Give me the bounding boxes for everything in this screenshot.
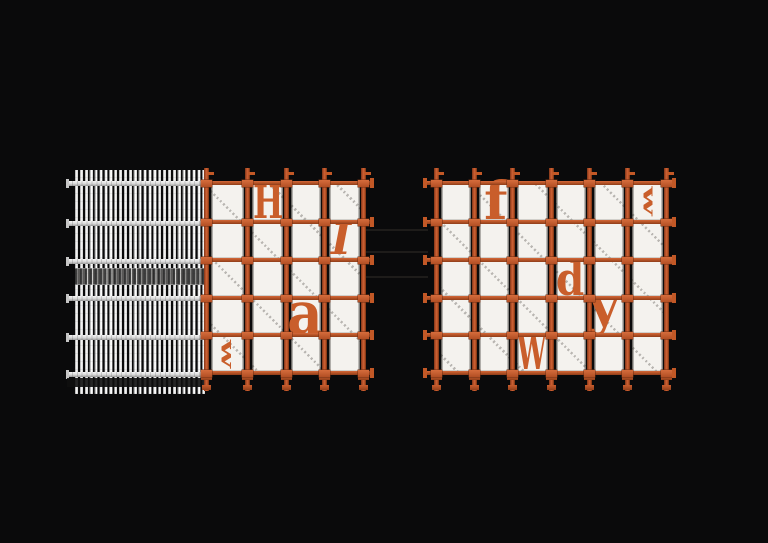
left-scaffold-joint-pad [358, 370, 369, 377]
left-scaffold-panel [211, 261, 244, 296]
right-scaffold-joint-pad [546, 257, 557, 264]
left-scaffold-panel [329, 299, 360, 333]
right-scaffold-joint-pad [661, 180, 672, 187]
right-scaffold-rail-end-tab [672, 293, 676, 303]
left-scaffold-panel [252, 336, 283, 371]
right-scaffold-rail-end-tab [672, 368, 676, 378]
right-scaffold-joint-pad [469, 332, 480, 339]
grate-rail [67, 259, 207, 264]
right-scaffold-panel [594, 184, 624, 220]
left-scaffold-rail-end-tab [370, 178, 374, 188]
left-scaffold-post [204, 168, 209, 391]
right-scaffold-post-foot [470, 385, 479, 390]
left-scaffold-joint-pad [358, 295, 369, 302]
right-scaffold-joint-pad [546, 219, 557, 226]
left-scaffold-post [245, 168, 250, 391]
left-scaffold-joint-pad [242, 370, 253, 377]
scaffold-letter-w: w [641, 186, 658, 215]
right-scaffold-joint-pad [469, 180, 480, 187]
left-scaffold-panel [211, 223, 244, 258]
right-scaffold-panel [594, 336, 624, 371]
scaffold-letter-H: H [253, 179, 283, 225]
left-scaffold-joint-pad [201, 295, 212, 302]
right-scaffold-rail-end-tab [672, 217, 676, 227]
background-ledger-line [366, 229, 428, 231]
right-scaffold-post-foot-tab [622, 376, 633, 380]
right-scaffold-panel [441, 223, 471, 258]
left-scaffold-joint-pad [242, 332, 253, 339]
left-scaffold-panel [252, 299, 283, 333]
right-scaffold-rail-end-tab [423, 368, 427, 378]
left-scaffold-panel [329, 261, 360, 296]
right-scaffold-panel [632, 223, 663, 258]
left-scaffold-joint-pad [319, 180, 330, 187]
left-scaffold-joint-pad [358, 180, 369, 187]
left-scaffold-post-foot-tab [242, 376, 253, 380]
right-scaffold-post-foot-tab [469, 376, 480, 380]
right-scaffold-joint-pad [622, 295, 633, 302]
right-scaffold-post [510, 168, 515, 391]
right-scaffold-joint-pad [584, 295, 595, 302]
left-scaffold-joint-pad [242, 295, 253, 302]
left-scaffold-joint-pad [319, 219, 330, 226]
right-scaffold-post-foot [662, 385, 671, 390]
right-scaffold-joint-pad [584, 370, 595, 377]
right-scaffold-joint-pad [507, 257, 518, 264]
right-scaffold-joint-pad [431, 257, 442, 264]
left-scaffold-joint-pad [281, 295, 292, 302]
right-scaffold-joint-pad [507, 332, 518, 339]
right-scaffold-joint-pad [431, 219, 442, 226]
right-scaffold-rail-end-tab [423, 293, 427, 303]
right-scaffold-joint-pad [546, 370, 557, 377]
left-scaffold-joint-pad [242, 257, 253, 264]
left-scaffold-panel [252, 261, 283, 296]
right-scaffold-rail-end-tab [423, 255, 427, 265]
right-scaffold-rail-end-tab [672, 255, 676, 265]
grate-rail-end-nub [66, 219, 69, 228]
right-scaffold-panel [479, 299, 509, 333]
right-scaffold-joint-pad [661, 332, 672, 339]
right-scaffold-joint-pad [661, 257, 672, 264]
right-scaffold-joint-pad [622, 370, 633, 377]
scaffold-letter-w: w [219, 340, 237, 368]
right-scaffold-post-foot-tab [431, 376, 442, 380]
left-scaffold-joint-pad [281, 219, 292, 226]
right-scaffold-joint-pad [431, 180, 442, 187]
grate-bottom-shadow-band [67, 378, 207, 387]
right-scaffold-post-top-tab [590, 172, 597, 175]
right-scaffold-post [472, 168, 477, 391]
right-scaffold-post-foot [432, 385, 441, 390]
right-scaffold-post-top-tab [628, 172, 635, 175]
right-scaffold-joint-pad [622, 219, 633, 226]
right-scaffold-joint-pad [584, 257, 595, 264]
right-scaffold-joint-pad [469, 219, 480, 226]
right-scaffold-panel [479, 336, 509, 371]
right-scaffold-joint-pad [546, 295, 557, 302]
right-scaffold-joint-pad [507, 370, 518, 377]
left-scaffold-joint-pad [319, 257, 330, 264]
right-scaffold-rail-end-tab [423, 330, 427, 340]
left-scaffold-post-top-tab [364, 172, 371, 175]
right-scaffold-post-foot [508, 385, 517, 390]
left-scaffold-joint-pad [201, 370, 212, 377]
left-scaffold-joint-pad [319, 370, 330, 377]
left-scaffold-panel [211, 299, 244, 333]
grate-coupler-band [75, 268, 207, 285]
right-scaffold-panel [632, 299, 663, 333]
right-scaffold-post [434, 168, 439, 391]
left-scaffold-post-top-tab [287, 172, 294, 175]
left-scaffold-joint-pad [281, 370, 292, 377]
right-scaffold-joint-pad [469, 370, 480, 377]
right-scaffold-joint-pad [661, 219, 672, 226]
right-scaffold-joint-pad [431, 332, 442, 339]
right-scaffold-post-foot-tab [584, 376, 595, 380]
right-scaffold-joint-pad [469, 257, 480, 264]
right-scaffold-joint-pad [507, 295, 518, 302]
right-scaffold-panel [632, 336, 663, 371]
left-scaffold-post-foot [243, 385, 252, 390]
left-scaffold-joint-pad [201, 180, 212, 187]
left-scaffold-post [361, 168, 366, 391]
right-scaffold-panel [556, 336, 586, 371]
grate-rail [67, 372, 207, 377]
right-scaffold-post-foot-tab [661, 376, 672, 380]
left-scaffold-panel [291, 184, 321, 220]
right-scaffold-panel [632, 261, 663, 296]
left-scaffold-post-foot-tab [358, 376, 369, 380]
right-scaffold-joint-pad [661, 295, 672, 302]
left-scaffold-post-foot-tab [201, 376, 212, 380]
right-scaffold-joint-pad [584, 180, 595, 187]
left-scaffold-panel [291, 223, 321, 258]
right-scaffold-post [549, 168, 554, 391]
left-scaffold-post-top-tab [248, 172, 255, 175]
left-scaffold-joint-pad [319, 332, 330, 339]
left-scaffold-rail-end-tab [370, 217, 374, 227]
grate-rail-end-nub [66, 179, 69, 188]
left-scaffold-joint-pad [358, 257, 369, 264]
left-scaffold-post-foot [202, 385, 211, 390]
right-scaffold-panel [517, 184, 548, 220]
left-scaffold-joint-pad [281, 180, 292, 187]
right-scaffold-panel [594, 223, 624, 258]
left-scaffold-post-foot [282, 385, 291, 390]
right-scaffold-joint-pad [431, 370, 442, 377]
right-scaffold-panel [441, 336, 471, 371]
right-scaffold-panel [479, 261, 509, 296]
right-scaffold-joint-pad [622, 180, 633, 187]
left-scaffold-panel [329, 336, 360, 371]
left-scaffold-rail-end-tab [370, 255, 374, 265]
right-scaffold-joint-pad [622, 332, 633, 339]
scaffold-letter-I: I [331, 219, 351, 262]
right-scaffold-joint-pad [469, 295, 480, 302]
left-scaffold-joint-pad [358, 332, 369, 339]
right-scaffold-post-foot [585, 385, 594, 390]
left-scaffold-joint-pad [201, 332, 212, 339]
left-scaffold-joint-pad [281, 257, 292, 264]
left-scaffold-post-top-tab [325, 172, 332, 175]
left-scaffold-rail-end-tab [370, 293, 374, 303]
left-scaffold-joint-pad [242, 219, 253, 226]
right-scaffold-post-foot-tab [546, 376, 557, 380]
left-scaffold-post-foot-tab [281, 376, 292, 380]
background-ledger-line [366, 276, 428, 278]
grate-rail-end-nub [66, 257, 69, 266]
right-scaffold-panel [441, 261, 471, 296]
left-scaffold-joint-pad [358, 219, 369, 226]
left-scaffold-post-foot [320, 385, 329, 390]
right-scaffold-joint-pad [661, 370, 672, 377]
right-scaffold-joint-pad [546, 180, 557, 187]
left-scaffold-post-top-tab [207, 172, 214, 175]
grate-rail [67, 296, 207, 301]
right-scaffold-post [664, 168, 669, 391]
right-scaffold-panel [517, 261, 548, 296]
background-ledger-line [366, 251, 428, 253]
render-viewport: Dark 3D render of two orange scaffolding… [0, 0, 768, 543]
scaffold-letter-y: y [589, 281, 619, 333]
right-scaffold-rail-end-tab [672, 178, 676, 188]
left-scaffold-joint-pad [201, 219, 212, 226]
right-scaffold-post-foot-tab [507, 376, 518, 380]
right-scaffold-joint-pad [584, 219, 595, 226]
left-scaffold-joint-pad [242, 180, 253, 187]
grate-rail [67, 181, 207, 186]
grate-rail [67, 335, 207, 340]
right-scaffold-post-foot [547, 385, 556, 390]
right-scaffold-joint-pad [622, 257, 633, 264]
right-scaffold-post-top-tab [513, 172, 520, 175]
left-scaffold-rail-end-tab [370, 330, 374, 340]
right-scaffold-post-top-tab [667, 172, 674, 175]
right-scaffold-joint-pad [584, 332, 595, 339]
right-scaffold-joint-pad [507, 219, 518, 226]
right-scaffold-post-top-tab [437, 172, 444, 175]
right-scaffold-panel [441, 184, 471, 220]
right-scaffold-post-top-tab [475, 172, 482, 175]
left-scaffold-joint-pad [201, 257, 212, 264]
grate-rail [67, 221, 207, 226]
right-scaffold-panel [556, 184, 586, 220]
right-scaffold-post-foot [623, 385, 632, 390]
right-scaffold-rail-end-tab [423, 178, 427, 188]
left-scaffold-joint-pad [281, 332, 292, 339]
grate-rail-end-nub [66, 294, 69, 303]
right-scaffold-rail-end-tab [672, 330, 676, 340]
grate-rail-end-nub [66, 333, 69, 342]
right-scaffold-panel [517, 223, 548, 258]
left-scaffold-post-foot [359, 385, 368, 390]
left-scaffold-rail-end-tab [370, 368, 374, 378]
left-scaffold-joint-pad [319, 295, 330, 302]
right-scaffold-post-top-tab [552, 172, 559, 175]
right-scaffold-post [625, 168, 630, 391]
left-scaffold-post-foot-tab [319, 376, 330, 380]
right-scaffold-panel [441, 299, 471, 333]
right-scaffold-joint-pad [507, 180, 518, 187]
right-scaffold-rail-end-tab [423, 217, 427, 227]
left-scaffold-panel [211, 184, 244, 220]
right-scaffold-joint-pad [546, 332, 557, 339]
right-scaffold-joint-pad [431, 295, 442, 302]
